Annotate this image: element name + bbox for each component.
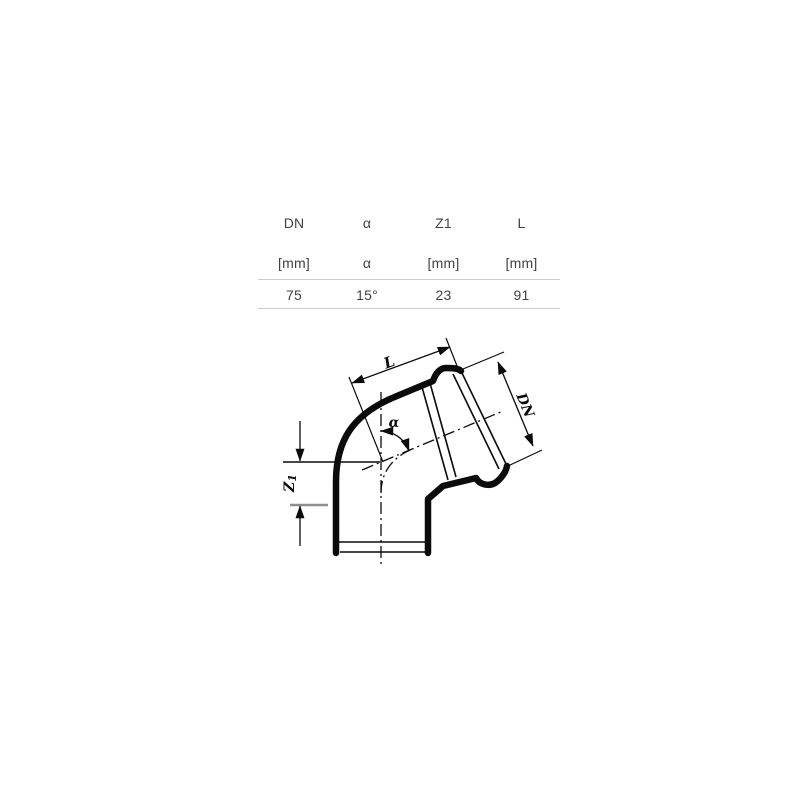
dn-extension-line-top — [463, 352, 504, 369]
socket-mouth-outer-line — [461, 371, 507, 466]
z1-dim-label: Z1 — [282, 474, 299, 493]
z1-label-sub: 1 — [286, 474, 299, 482]
socket-mouth-inner-line — [453, 374, 499, 469]
dn-extension-line-bottom — [508, 450, 542, 466]
alpha-angle-label: α — [389, 415, 400, 431]
l-extension-line-left — [349, 377, 383, 462]
pipe-outline-lower — [428, 466, 507, 553]
catalog-page: DN α Z1 L [mm] α [mm] [mm] 75 15° 23 91 — [0, 0, 800, 800]
technical-drawing: Z1 L DN α — [0, 0, 800, 800]
alpha-angle-arc — [381, 431, 409, 451]
l-dim-label: L — [380, 352, 397, 373]
z1-label-z: Z — [282, 481, 298, 493]
